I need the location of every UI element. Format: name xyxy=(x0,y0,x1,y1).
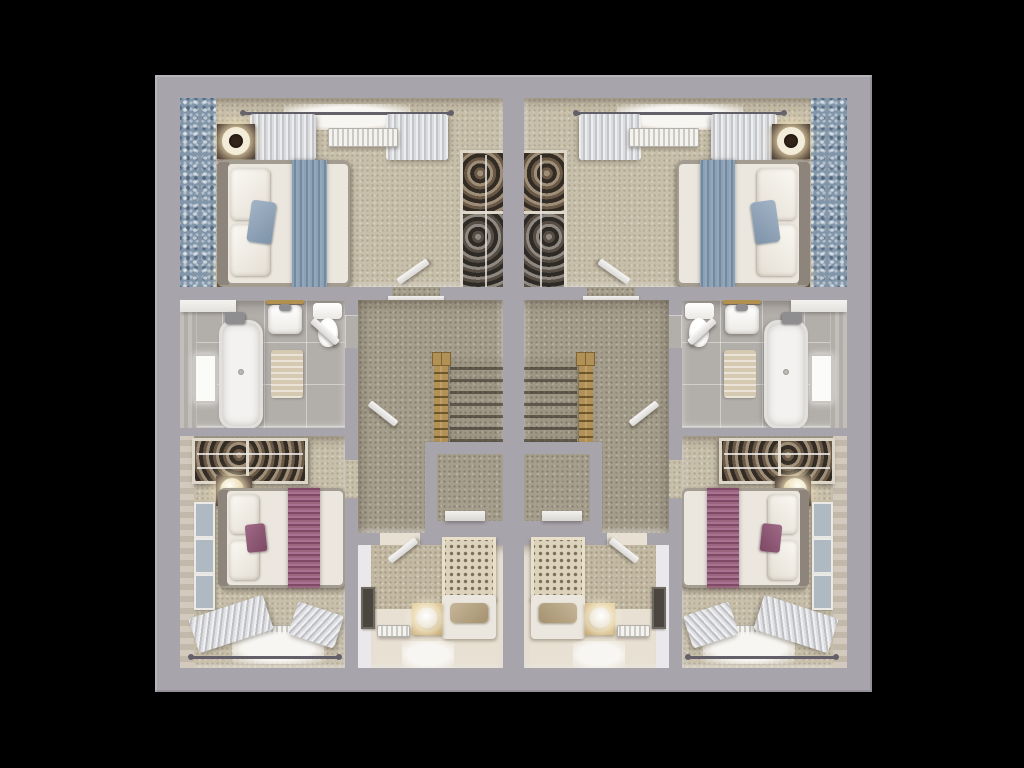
bedroom-door xyxy=(396,258,430,284)
radiator xyxy=(617,625,650,637)
picture-frame xyxy=(812,538,833,574)
staircase xyxy=(524,358,577,446)
curtain-finial xyxy=(685,654,691,660)
bathroom-window xyxy=(194,354,217,403)
vanity-counter xyxy=(791,300,847,312)
cupboard-panel xyxy=(542,511,582,521)
newel-post xyxy=(441,352,451,366)
blue-throw-runner xyxy=(292,160,327,287)
wardrobe-rail xyxy=(485,155,487,287)
double-bed xyxy=(682,488,809,588)
wall xyxy=(180,287,503,300)
curtain-finial xyxy=(188,654,194,660)
blue-throw-runner xyxy=(700,160,735,287)
master-wardrobe xyxy=(460,150,503,287)
staircase xyxy=(450,358,503,446)
waffle-quilt-bed xyxy=(442,537,496,601)
curtain-finial xyxy=(781,110,787,116)
wardrobe-rail xyxy=(724,453,830,455)
double-bed xyxy=(677,160,810,287)
wardrobe-divider xyxy=(778,441,781,481)
blue-accent-wall xyxy=(811,98,847,287)
bath-mat xyxy=(271,350,303,398)
hanging-clothes xyxy=(722,441,832,481)
banister xyxy=(434,356,448,452)
ring-lamp xyxy=(777,127,805,155)
ring-lamp xyxy=(222,127,250,155)
picture-frame xyxy=(361,587,375,629)
screenshot-canvas xyxy=(0,0,1024,768)
wall xyxy=(524,287,847,300)
floor-plan xyxy=(155,75,872,692)
airing-cupboard xyxy=(425,442,503,533)
radiator xyxy=(328,128,398,147)
bathroom xyxy=(682,300,847,428)
picture-frame xyxy=(652,587,666,629)
headboard xyxy=(798,162,810,285)
basin-faucet xyxy=(279,304,291,311)
wardrobe-rail xyxy=(197,467,303,469)
toilet-cistern xyxy=(685,303,714,319)
double-bed xyxy=(218,488,345,588)
hanging-clothes xyxy=(524,153,564,211)
waffle-quilt-bed xyxy=(531,537,585,601)
bedroom-two xyxy=(180,436,345,668)
curtain-finial xyxy=(336,654,342,660)
headboard xyxy=(799,490,809,586)
bathroom xyxy=(180,300,345,428)
basin-faucet xyxy=(736,304,748,311)
unit-left xyxy=(180,98,503,668)
unit-right xyxy=(524,98,847,668)
curtain-finial xyxy=(240,110,246,116)
plum-throw-runner xyxy=(288,488,320,588)
master-wardrobe xyxy=(524,150,567,287)
wardrobe-rail xyxy=(197,453,303,455)
bedroom-door xyxy=(597,258,631,284)
tub-drain xyxy=(238,369,244,375)
bedroom3-window xyxy=(573,641,625,668)
bedroom-two xyxy=(682,436,847,668)
picture-frame xyxy=(194,538,215,574)
newel-post xyxy=(585,352,595,366)
landing-door xyxy=(628,400,659,426)
taupe-pillow xyxy=(450,603,488,623)
accent-wall xyxy=(833,436,847,668)
tub-drain xyxy=(783,369,789,375)
radiator xyxy=(629,128,699,147)
curtain-rail xyxy=(192,656,338,659)
plum-cushion xyxy=(760,523,783,553)
landing xyxy=(358,300,503,533)
wall xyxy=(180,428,345,436)
landing-door xyxy=(367,400,398,426)
disc-lamp xyxy=(416,607,438,629)
taupe-pillow xyxy=(539,603,577,623)
master-bedroom xyxy=(524,98,847,287)
bathtub xyxy=(764,320,808,428)
master-bedroom xyxy=(180,98,503,287)
bath-mat xyxy=(724,350,756,398)
curtain-left xyxy=(250,114,316,160)
landing xyxy=(524,300,669,533)
wardrobe-rail xyxy=(724,467,830,469)
plum-cushion xyxy=(245,523,268,553)
door-opening xyxy=(345,460,358,498)
picture-frame xyxy=(194,502,215,538)
wardrobe-rail xyxy=(541,155,543,287)
picture-frame xyxy=(812,574,833,610)
bath-faucet xyxy=(782,312,802,324)
door-opening xyxy=(669,315,682,348)
bathtub xyxy=(219,320,263,428)
toilet-cistern xyxy=(313,303,342,319)
hanging-clothes xyxy=(524,214,564,287)
curtain-rail xyxy=(689,656,835,659)
picture-frame xyxy=(194,574,215,610)
bedroom-three xyxy=(524,545,669,668)
wall xyxy=(682,428,847,436)
hanging-clothes xyxy=(463,214,503,287)
hanging-clothes xyxy=(195,441,305,481)
bedroom-three xyxy=(358,545,503,668)
bathroom-window xyxy=(810,354,833,403)
bath-faucet xyxy=(225,312,245,324)
wardrobe-divider xyxy=(246,441,249,481)
hanging-clothes xyxy=(463,153,503,211)
disc-lamp xyxy=(589,607,611,629)
door-opening xyxy=(669,460,682,498)
curtain-finial xyxy=(573,110,579,116)
curtain-left xyxy=(711,114,777,160)
bedroom3-window xyxy=(402,641,454,668)
plum-throw-runner xyxy=(707,488,739,588)
blue-accent-wall xyxy=(180,98,216,287)
vanity-counter xyxy=(180,300,236,312)
newel-post xyxy=(576,352,586,366)
curtain-finial xyxy=(448,110,454,116)
door-opening xyxy=(345,315,358,348)
banister xyxy=(579,356,593,452)
radiator xyxy=(377,625,410,637)
picture-frame xyxy=(812,502,833,538)
curtain-finial xyxy=(833,654,839,660)
airing-cupboard xyxy=(524,442,602,533)
double-bed xyxy=(217,160,350,287)
cupboard-panel xyxy=(445,511,485,521)
